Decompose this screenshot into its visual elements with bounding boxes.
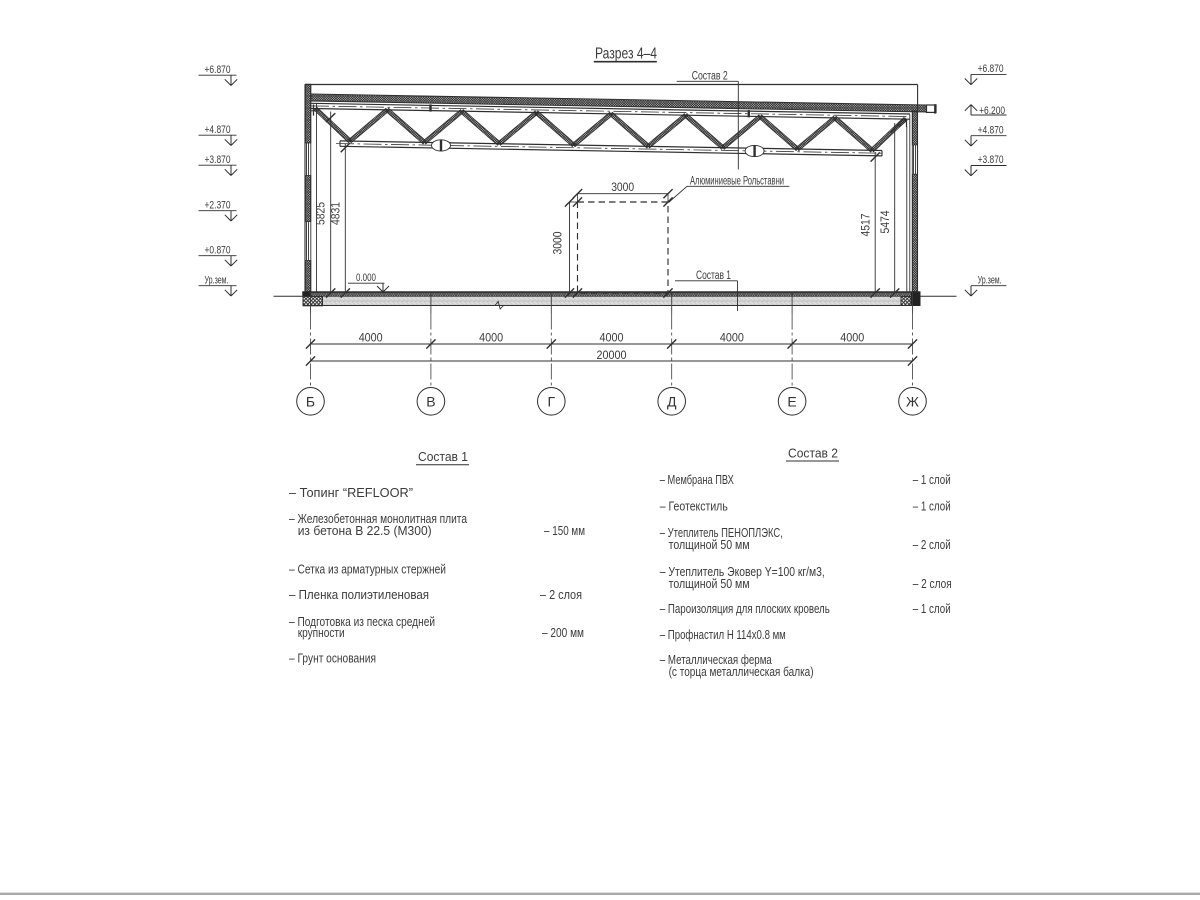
svg-text:+3.870: +3.870 xyxy=(205,154,231,166)
svg-text:4831: 4831 xyxy=(331,202,343,225)
svg-text:– 2 слоя: – 2 слоя xyxy=(913,576,952,591)
svg-text:– 200 мм: – 200 мм xyxy=(542,625,584,640)
svg-text:Алюминиевые Рольставни: Алюминиевые Рольставни xyxy=(690,175,784,187)
svg-text:– 150 мм: – 150 мм xyxy=(544,523,585,538)
svg-text:– 2 слой: – 2 слой xyxy=(913,537,951,552)
svg-text:толщиной 50 мм: толщиной 50 мм xyxy=(669,576,750,591)
svg-text:– 1 слой: – 1 слой xyxy=(913,499,951,514)
svg-text:Разрез 4–4: Разрез 4–4 xyxy=(595,46,657,63)
svg-text:4000: 4000 xyxy=(840,333,864,345)
svg-text:+6.870: +6.870 xyxy=(978,63,1004,75)
svg-text:– Пленка полиэтиленовая: – Пленка полиэтиленовая xyxy=(289,587,429,602)
svg-text:– 1 слой: – 1 слой xyxy=(913,601,951,616)
svg-text:– Профнастил Н 114х0.8 мм: – Профнастил Н 114х0.8 мм xyxy=(660,627,786,642)
svg-text:– Сетка из арматурных стержней: – Сетка из арматурных стержней xyxy=(289,562,446,577)
svg-text:5474: 5474 xyxy=(880,210,892,234)
svg-text:В: В xyxy=(426,393,435,409)
svg-text:+4.870: +4.870 xyxy=(205,124,231,136)
svg-text:– Геотекстиль: – Геотекстиль xyxy=(660,499,728,514)
svg-text:0.000: 0.000 xyxy=(356,272,376,284)
svg-text:Ур.зем.: Ур.зем. xyxy=(205,274,229,286)
svg-text:+6.870: +6.870 xyxy=(205,64,231,76)
svg-text:+3.870: +3.870 xyxy=(978,154,1004,166)
svg-text:3000: 3000 xyxy=(553,232,565,255)
svg-text:– Пароизоляция для плоских кро: – Пароизоляция для плоских кровель xyxy=(660,601,830,616)
svg-text:Ур.зем.: Ур.зем. xyxy=(978,274,1002,286)
svg-text:+2.370: +2.370 xyxy=(205,199,231,211)
svg-text:– Грунт основания: – Грунт основания xyxy=(289,651,376,666)
svg-text:5825: 5825 xyxy=(316,202,328,225)
svg-text:из бетона В 22.5 (М300): из бетона В 22.5 (М300) xyxy=(298,523,432,538)
svg-text:– 1 слой: – 1 слой xyxy=(913,472,951,487)
svg-text:Состав 2: Состав 2 xyxy=(788,446,838,461)
svg-text:– Мембрана ПВХ: – Мембрана ПВХ xyxy=(660,472,734,487)
svg-text:Е: Е xyxy=(787,393,796,409)
svg-text:толщиной 50 мм: толщиной 50 мм xyxy=(669,537,750,552)
svg-text:Д: Д xyxy=(667,393,677,409)
svg-text:(с торца металлическая балка): (с торца металлическая балка) xyxy=(669,664,814,679)
svg-text:+4.870: +4.870 xyxy=(978,124,1004,136)
svg-text:Ж: Ж xyxy=(906,393,919,409)
svg-text:4000: 4000 xyxy=(720,333,744,345)
svg-text:3000: 3000 xyxy=(611,182,634,194)
svg-text:+6.200: +6.200 xyxy=(979,105,1005,117)
svg-text:крупности: крупности xyxy=(298,625,345,640)
svg-text:20000: 20000 xyxy=(597,350,627,362)
svg-text:4000: 4000 xyxy=(479,333,503,345)
svg-text:+0.870: +0.870 xyxy=(205,244,231,256)
svg-text:– Топинг “REFLOOR”: – Топинг “REFLOOR” xyxy=(289,485,413,500)
svg-text:4517: 4517 xyxy=(861,214,873,237)
svg-text:Состав 1: Состав 1 xyxy=(696,270,731,282)
svg-text:– 2 слоя: – 2 слоя xyxy=(540,587,582,602)
svg-text:Б: Б xyxy=(306,393,315,409)
svg-text:Г: Г xyxy=(548,393,556,409)
svg-text:4000: 4000 xyxy=(359,333,383,345)
svg-text:Состав 1: Состав 1 xyxy=(418,449,468,464)
svg-text:4000: 4000 xyxy=(600,333,624,345)
